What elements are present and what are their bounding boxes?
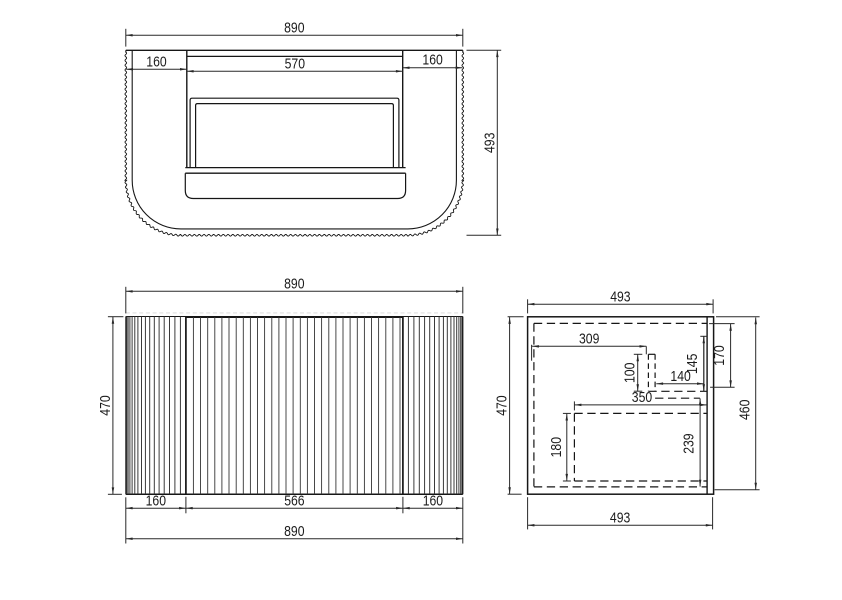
svg-text:493: 493 <box>481 133 498 153</box>
svg-text:309: 309 <box>579 330 599 347</box>
svg-text:460: 460 <box>736 400 753 420</box>
svg-text:570: 570 <box>285 55 305 72</box>
svg-text:890: 890 <box>284 276 304 293</box>
svg-text:890: 890 <box>284 19 304 36</box>
svg-text:350: 350 <box>632 389 652 406</box>
svg-text:493: 493 <box>610 288 630 305</box>
svg-text:145: 145 <box>684 354 701 374</box>
svg-text:890: 890 <box>284 523 304 540</box>
svg-text:160: 160 <box>146 492 166 509</box>
svg-text:566: 566 <box>284 492 304 509</box>
svg-text:160: 160 <box>146 53 166 70</box>
svg-text:470: 470 <box>97 395 114 415</box>
svg-text:160: 160 <box>422 52 442 69</box>
svg-text:470: 470 <box>494 395 511 415</box>
svg-text:180: 180 <box>548 437 565 457</box>
svg-text:160: 160 <box>423 492 443 509</box>
svg-text:239: 239 <box>680 433 697 453</box>
svg-text:493: 493 <box>610 509 630 526</box>
svg-text:100: 100 <box>622 363 639 383</box>
svg-text:170: 170 <box>711 345 728 365</box>
